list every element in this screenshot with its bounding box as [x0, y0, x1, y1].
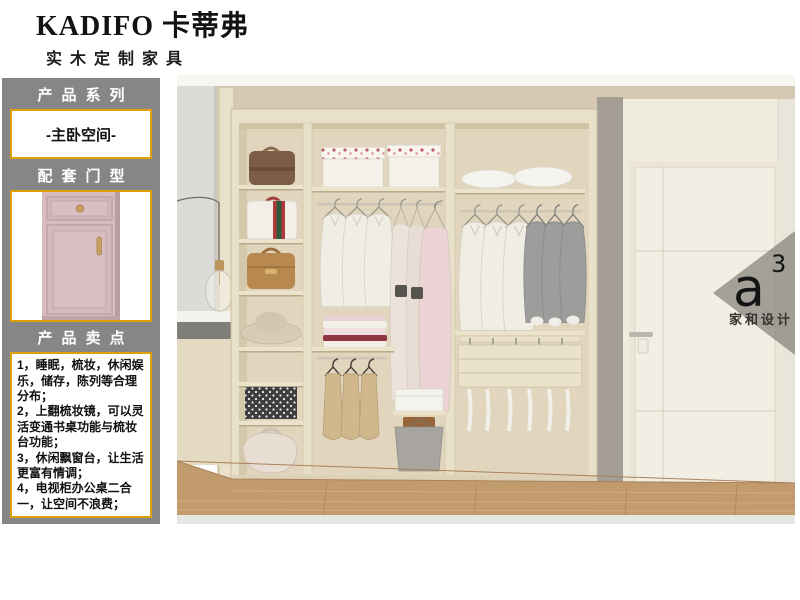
watermark-caption: 家和设计 [729, 312, 793, 328]
pink-door-illustration [42, 192, 120, 320]
white-shirts-hanging [320, 199, 393, 307]
folded-clothes-stack [323, 315, 387, 347]
vanity-counter [177, 311, 233, 465]
room-photo: a 3 家和设计 [177, 75, 795, 524]
slip-dresses [390, 199, 451, 411]
series-value: -主卧空间- [46, 124, 116, 145]
door-lock-plate [638, 339, 648, 353]
pink-robe [419, 201, 451, 411]
gray-garments-hanging [524, 205, 586, 327]
selling-point: 3，休闲飘窗台，让生活更富有情调； [17, 451, 145, 482]
door-handle [97, 237, 102, 255]
selling-points-box: 1，睡眠，梳妆，休闲娱乐，储存，陈列等合理分布； 2，上翻梳妆镜，可以灵活变通书… [10, 352, 152, 518]
series-value-box: -主卧空间- [10, 109, 152, 159]
selling-point: 1，睡眠，梳妆，休闲娱乐，储存，陈列等合理分布； [17, 358, 145, 404]
section-title-series: 产品系列 [10, 88, 152, 103]
sidebar: 产品系列 -主卧空间- 配套门型 产品卖点 1，睡眠，梳妆，休闲娱 [2, 78, 160, 524]
flyer-page: KADIFO 卡蒂弗 实木定制家具 产品系列 -主卧空间- 配套门型 [0, 0, 800, 600]
room-photo-illustration: a 3 家和设计 [177, 75, 795, 524]
door-handle [629, 332, 653, 337]
patterned-storage-box [245, 387, 297, 419]
door-knob [76, 205, 83, 212]
hanging-rod [317, 203, 443, 206]
section-title-door: 配套门型 [10, 169, 152, 184]
gray-wall-strip [597, 97, 623, 491]
brand-tagline: 实木定制家具 [46, 45, 190, 69]
door-style-box [10, 190, 152, 322]
watermark-letter: a [733, 259, 765, 319]
striped-handbag [247, 198, 297, 239]
tan-handbag [247, 249, 295, 289]
selling-point: 2，上翻梳妆镜，可以灵活变通书桌功能与梳妆台功能； [17, 404, 145, 450]
hanging-rod [317, 357, 387, 360]
selling-point: 4，电视柜办公桌二合一，让空间不浪费； [17, 481, 145, 512]
hanging-rod [460, 210, 582, 213]
white-box [395, 389, 443, 411]
brown-handbag [249, 148, 295, 185]
floral-boxes [321, 145, 441, 187]
section-title-selling: 产品卖点 [10, 331, 152, 346]
watermark-superscript: 3 [771, 250, 786, 278]
brand-logo: KADIFO 卡蒂弗 [36, 4, 249, 44]
